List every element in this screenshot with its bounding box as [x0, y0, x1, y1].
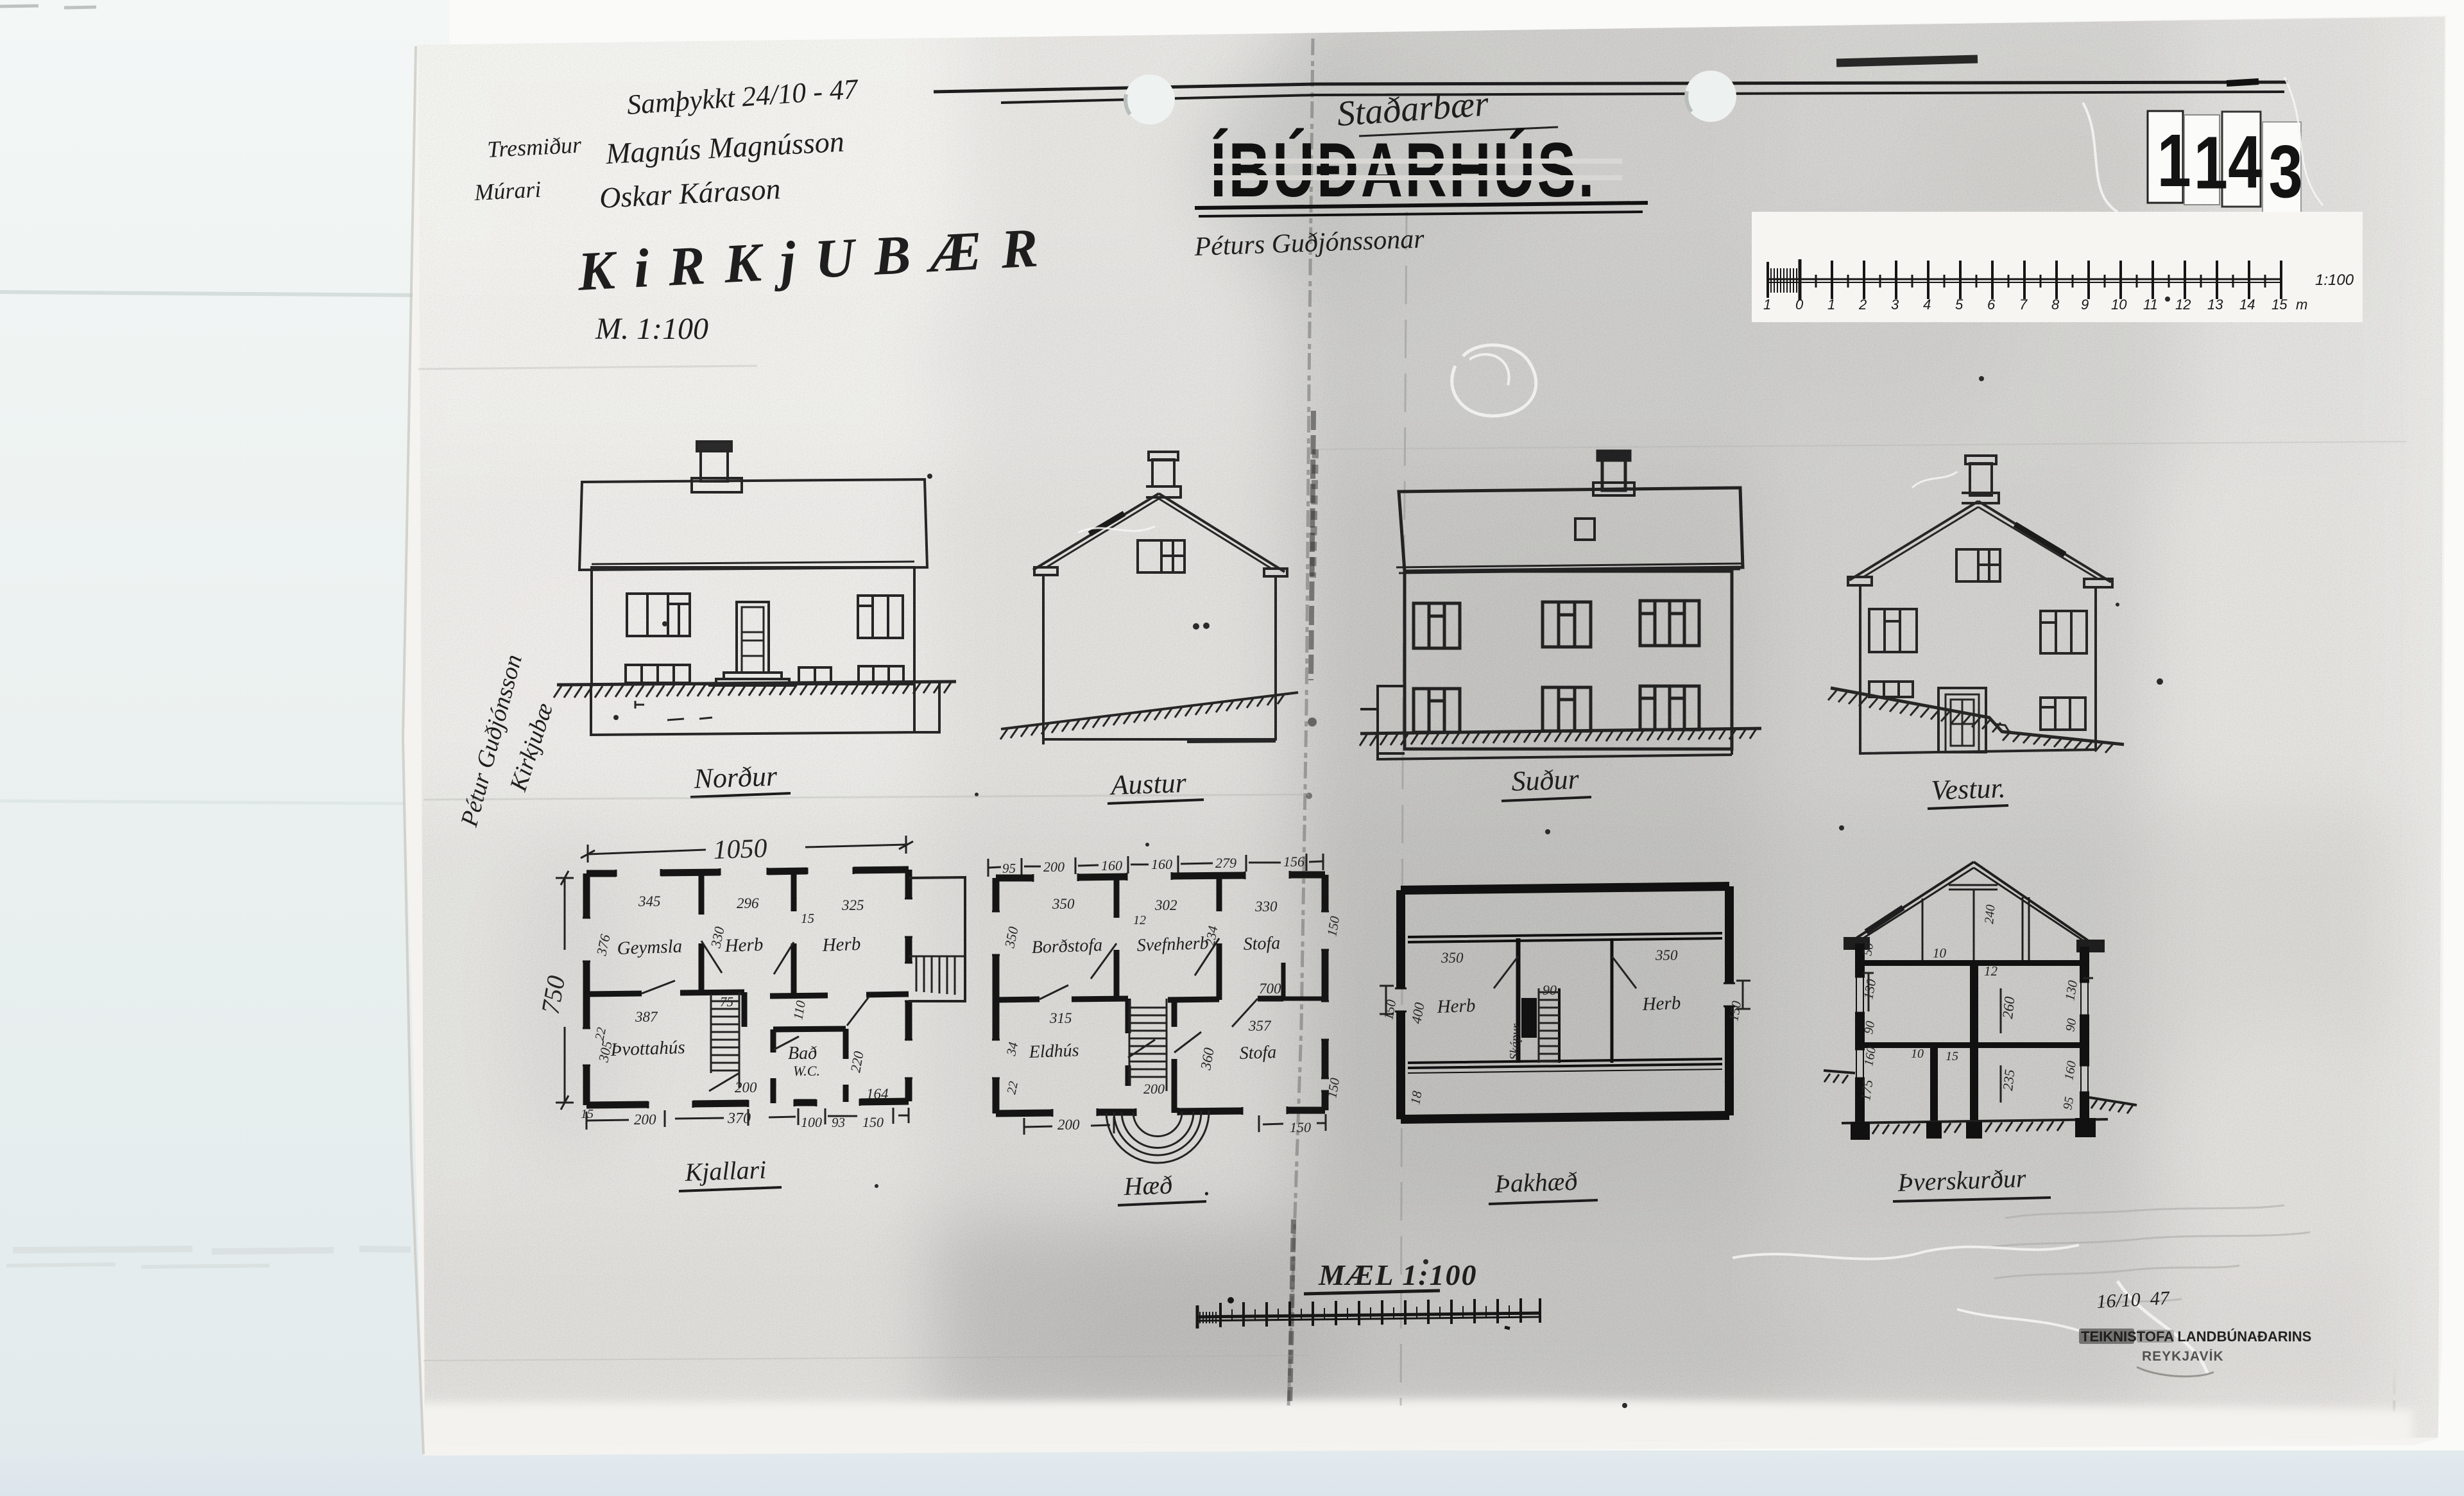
svg-text:5: 5	[1955, 297, 1964, 313]
svg-text:15: 15	[801, 911, 814, 926]
svg-text:3: 3	[1891, 297, 1899, 313]
svg-text:Skápur: Skápur	[1507, 1023, 1523, 1060]
svg-text:100: 100	[801, 1114, 822, 1130]
svg-text:302: 302	[1154, 897, 1177, 913]
svg-text:Hæð: Hæð	[1123, 1170, 1173, 1201]
svg-text:REYKJAVÍK: REYKJAVÍK	[2142, 1349, 2224, 1364]
svg-text:Vestur.: Vestur.	[1931, 772, 2006, 806]
svg-text:4: 4	[1923, 297, 1931, 313]
svg-text:156: 156	[1283, 854, 1305, 870]
svg-text:16/10 47: 16/10 47	[2096, 1287, 2171, 1312]
svg-text:Þakhæð: Þakhæð	[1494, 1167, 1578, 1199]
svg-text:Borðstofa: Borðstofa	[1031, 935, 1102, 958]
svg-text:8: 8	[2051, 297, 2060, 313]
svg-text:12: 12	[1984, 963, 1998, 979]
svg-text:260: 260	[1999, 995, 2018, 1019]
svg-text:2: 2	[1858, 297, 1867, 313]
svg-text:1: 1	[1827, 297, 1835, 313]
svg-text:350: 350	[1441, 950, 1464, 966]
svg-text:Eldhús: Eldhús	[1028, 1040, 1079, 1062]
svg-text:W.C.: W.C.	[793, 1063, 820, 1079]
svg-text:95: 95	[2060, 1096, 2076, 1111]
svg-text:4: 4	[2228, 120, 2262, 203]
svg-text:Stofa: Stofa	[1243, 933, 1281, 954]
svg-text:7: 7	[2019, 297, 2028, 313]
svg-text:m: m	[2296, 297, 2307, 313]
svg-text:Kjallari: Kjallari	[684, 1155, 767, 1187]
svg-text:200: 200	[1043, 859, 1065, 875]
svg-text:296: 296	[737, 895, 759, 911]
svg-text:14: 14	[2239, 297, 2255, 313]
svg-text:15: 15	[581, 1107, 594, 1121]
svg-text:Herb: Herb	[724, 934, 764, 956]
svg-text:700: 700	[1259, 981, 1281, 997]
svg-text:93: 93	[832, 1115, 845, 1130]
svg-text:345: 345	[638, 893, 661, 909]
svg-text:10: 10	[1911, 1047, 1924, 1061]
svg-text:350: 350	[1655, 947, 1678, 963]
svg-text:164: 164	[866, 1086, 889, 1102]
svg-text:Tresmiður: Tresmiður	[486, 132, 583, 162]
svg-text:Geymsla: Geymsla	[617, 936, 683, 959]
svg-text:Þvottahús: Þvottahús	[610, 1037, 685, 1060]
svg-text:13: 13	[2207, 297, 2223, 313]
svg-text:0: 0	[1795, 297, 1804, 313]
svg-text:Suður: Suður	[1511, 763, 1580, 797]
svg-text:387: 387	[635, 1009, 658, 1025]
svg-text:1: 1	[1763, 297, 1771, 313]
svg-text:235: 235	[1999, 1069, 2017, 1091]
svg-text:200: 200	[634, 1112, 656, 1128]
svg-text:1:100: 1:100	[2315, 271, 2354, 289]
svg-text:90: 90	[1861, 1020, 1878, 1035]
svg-text:160: 160	[1101, 857, 1122, 873]
svg-text:370: 370	[727, 1110, 751, 1127]
svg-text:15: 15	[2271, 297, 2288, 313]
svg-text:12: 12	[2175, 297, 2191, 313]
svg-text:.: .	[1204, 1170, 1211, 1201]
svg-text:1050: 1050	[713, 834, 768, 865]
svg-text:Stofa: Stofa	[1239, 1042, 1277, 1063]
svg-text:Herb: Herb	[1436, 995, 1476, 1017]
svg-text:350: 350	[1052, 896, 1075, 912]
svg-text:90: 90	[2063, 1017, 2079, 1033]
svg-text:ÍBÚÐARHÚS.: ÍBÚÐARHÚS.	[1210, 127, 1596, 213]
svg-text:11: 11	[2143, 297, 2158, 313]
svg-text:1: 1	[2194, 121, 2228, 205]
svg-text:95: 95	[1002, 861, 1016, 876]
svg-text:12: 12	[1133, 913, 1146, 927]
svg-text:175: 175	[1857, 1079, 1876, 1102]
svg-text:Svefnherb: Svefnherb	[1136, 933, 1209, 956]
svg-text:150: 150	[1290, 1119, 1311, 1135]
svg-text:MÆL 1:100: MÆL 1:100	[1318, 1259, 1478, 1291]
svg-text:Herb: Herb	[1641, 993, 1681, 1015]
svg-text:3: 3	[2269, 130, 2303, 213]
svg-text:240: 240	[1982, 904, 1998, 925]
svg-text:200: 200	[1057, 1117, 1080, 1133]
svg-text:50: 50	[1860, 941, 1876, 957]
svg-text:357: 357	[1248, 1018, 1272, 1034]
svg-text:200: 200	[1143, 1081, 1165, 1097]
svg-text:315: 315	[1049, 1010, 1072, 1026]
svg-text:Múrari: Múrari	[473, 176, 542, 205]
svg-text:160: 160	[1151, 856, 1172, 872]
svg-text:Þverskurður: Þverskurður	[1897, 1164, 2027, 1197]
svg-text:330: 330	[1254, 898, 1278, 915]
svg-text:90: 90	[1543, 982, 1557, 998]
svg-text:9: 9	[2081, 297, 2089, 313]
svg-text:325: 325	[841, 897, 864, 913]
svg-text:279: 279	[1215, 855, 1236, 871]
svg-text:10: 10	[2111, 297, 2127, 313]
svg-text:15: 15	[1946, 1049, 1958, 1063]
svg-text:10: 10	[1933, 945, 1947, 961]
svg-text:Norður: Norður	[693, 760, 778, 795]
svg-text:150: 150	[862, 1114, 884, 1130]
svg-text:Bað: Bað	[788, 1044, 817, 1063]
svg-text:Herb: Herb	[821, 934, 861, 956]
svg-text:M. 1:100: M. 1:100	[595, 312, 708, 346]
svg-text:6: 6	[1987, 297, 1996, 313]
svg-text:200: 200	[735, 1079, 757, 1096]
svg-text:75: 75	[720, 994, 733, 1010]
svg-text:1: 1	[2157, 119, 2191, 202]
